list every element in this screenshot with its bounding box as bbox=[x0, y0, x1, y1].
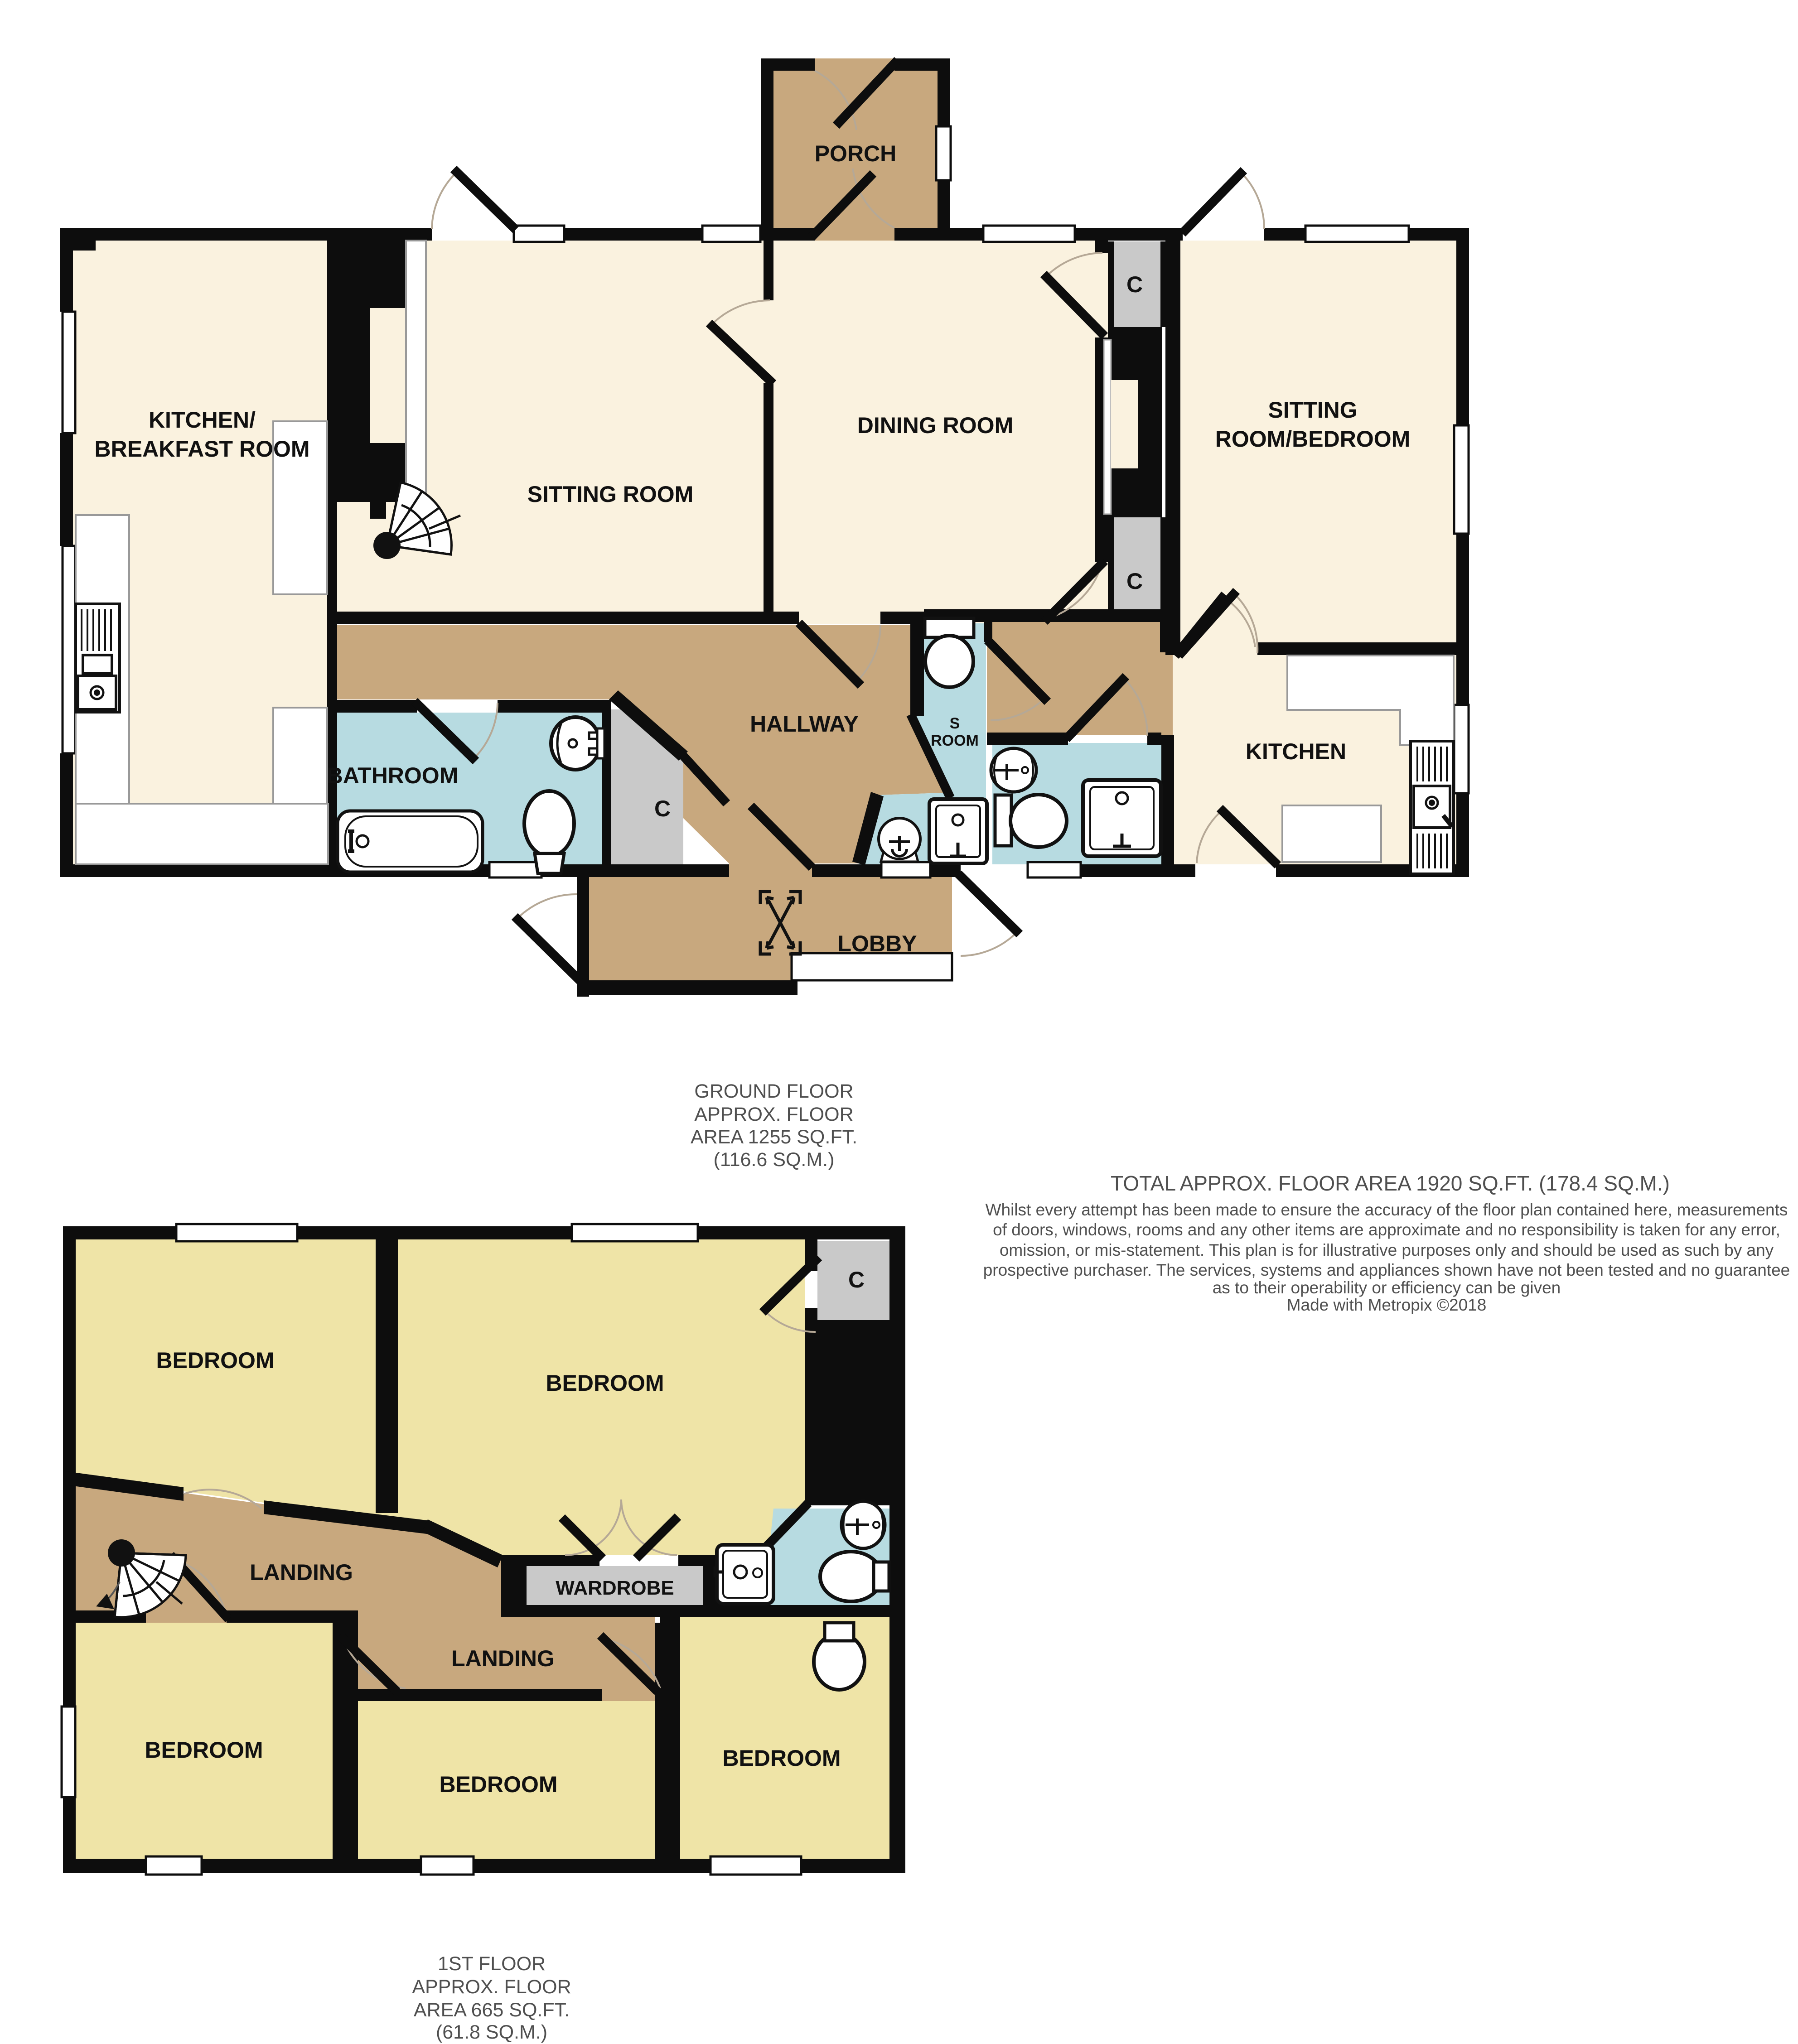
svg-text:BEDROOM: BEDROOM bbox=[439, 1772, 557, 1797]
svg-text:HALLWAY: HALLWAY bbox=[750, 711, 859, 737]
svg-text:as to their operability or eff: as to their operability or efficiency ca… bbox=[1213, 1278, 1561, 1297]
svg-text:APPROX. FLOOR: APPROX. FLOOR bbox=[694, 1104, 853, 1125]
svg-text:ROOM/BEDROOM: ROOM/BEDROOM bbox=[1215, 426, 1411, 452]
svg-text:LANDING: LANDING bbox=[451, 1646, 555, 1671]
svg-text:1ST FLOOR: 1ST FLOOR bbox=[438, 1953, 546, 1975]
svg-text:Made with Metropix ©2018: Made with Metropix ©2018 bbox=[1287, 1296, 1487, 1314]
svg-text:prospective purchaser. The ser: prospective purchaser. The services, sys… bbox=[983, 1261, 1790, 1279]
svg-text:omission, or mis-statement. Th: omission, or mis-statement. This plan is… bbox=[1000, 1241, 1774, 1259]
svg-text:C: C bbox=[1126, 569, 1143, 594]
svg-text:DINING ROOM: DINING ROOM bbox=[857, 413, 1013, 438]
svg-text:C: C bbox=[1126, 272, 1143, 297]
svg-text:BATHROOM: BATHROOM bbox=[327, 763, 459, 788]
svg-text:C: C bbox=[654, 796, 671, 821]
svg-text:of doors, windows, rooms and a: of doors, windows, rooms and any other i… bbox=[993, 1220, 1780, 1239]
svg-text:LANDING: LANDING bbox=[250, 1560, 353, 1585]
svg-text:S: S bbox=[950, 715, 960, 732]
svg-text:GROUND FLOOR: GROUND FLOOR bbox=[694, 1080, 853, 1102]
svg-text:TOTAL APPROX. FLOOR AREA 1920: TOTAL APPROX. FLOOR AREA 1920 SQ.FT. (17… bbox=[1111, 1171, 1670, 1195]
svg-text:ROOM: ROOM bbox=[931, 732, 979, 749]
svg-text:BEDROOM: BEDROOM bbox=[546, 1370, 664, 1396]
svg-text:SITTING: SITTING bbox=[1268, 397, 1357, 423]
svg-text:(61.8 SQ.M.): (61.8 SQ.M.) bbox=[436, 2021, 547, 2043]
svg-text:WARDROBE: WARDROBE bbox=[556, 1577, 674, 1599]
svg-text:BEDROOM: BEDROOM bbox=[722, 1745, 841, 1771]
svg-text:PORCH: PORCH bbox=[815, 141, 897, 166]
svg-text:SITTING ROOM: SITTING ROOM bbox=[527, 482, 694, 507]
svg-text:BEDROOM: BEDROOM bbox=[156, 1348, 274, 1373]
svg-text:KITCHEN: KITCHEN bbox=[1246, 739, 1346, 764]
svg-text:KITCHEN/: KITCHEN/ bbox=[149, 407, 256, 433]
svg-text:C: C bbox=[848, 1267, 865, 1292]
svg-text:APPROX. FLOOR: APPROX. FLOOR bbox=[412, 1976, 571, 1998]
svg-text:BEDROOM: BEDROOM bbox=[145, 1737, 263, 1763]
svg-text:LOBBY: LOBBY bbox=[838, 931, 917, 956]
svg-text:BREAKFAST ROOM: BREAKFAST ROOM bbox=[95, 436, 310, 462]
svg-text:Whilst every attempt has been: Whilst every attempt has been made to en… bbox=[986, 1200, 1788, 1219]
svg-text:AREA 665 SQ.FT.: AREA 665 SQ.FT. bbox=[414, 1999, 570, 2021]
svg-text:(116.6 SQ.M.): (116.6 SQ.M.) bbox=[714, 1149, 835, 1171]
svg-text:AREA 1255 SQ.FT.: AREA 1255 SQ.FT. bbox=[691, 1126, 857, 1148]
